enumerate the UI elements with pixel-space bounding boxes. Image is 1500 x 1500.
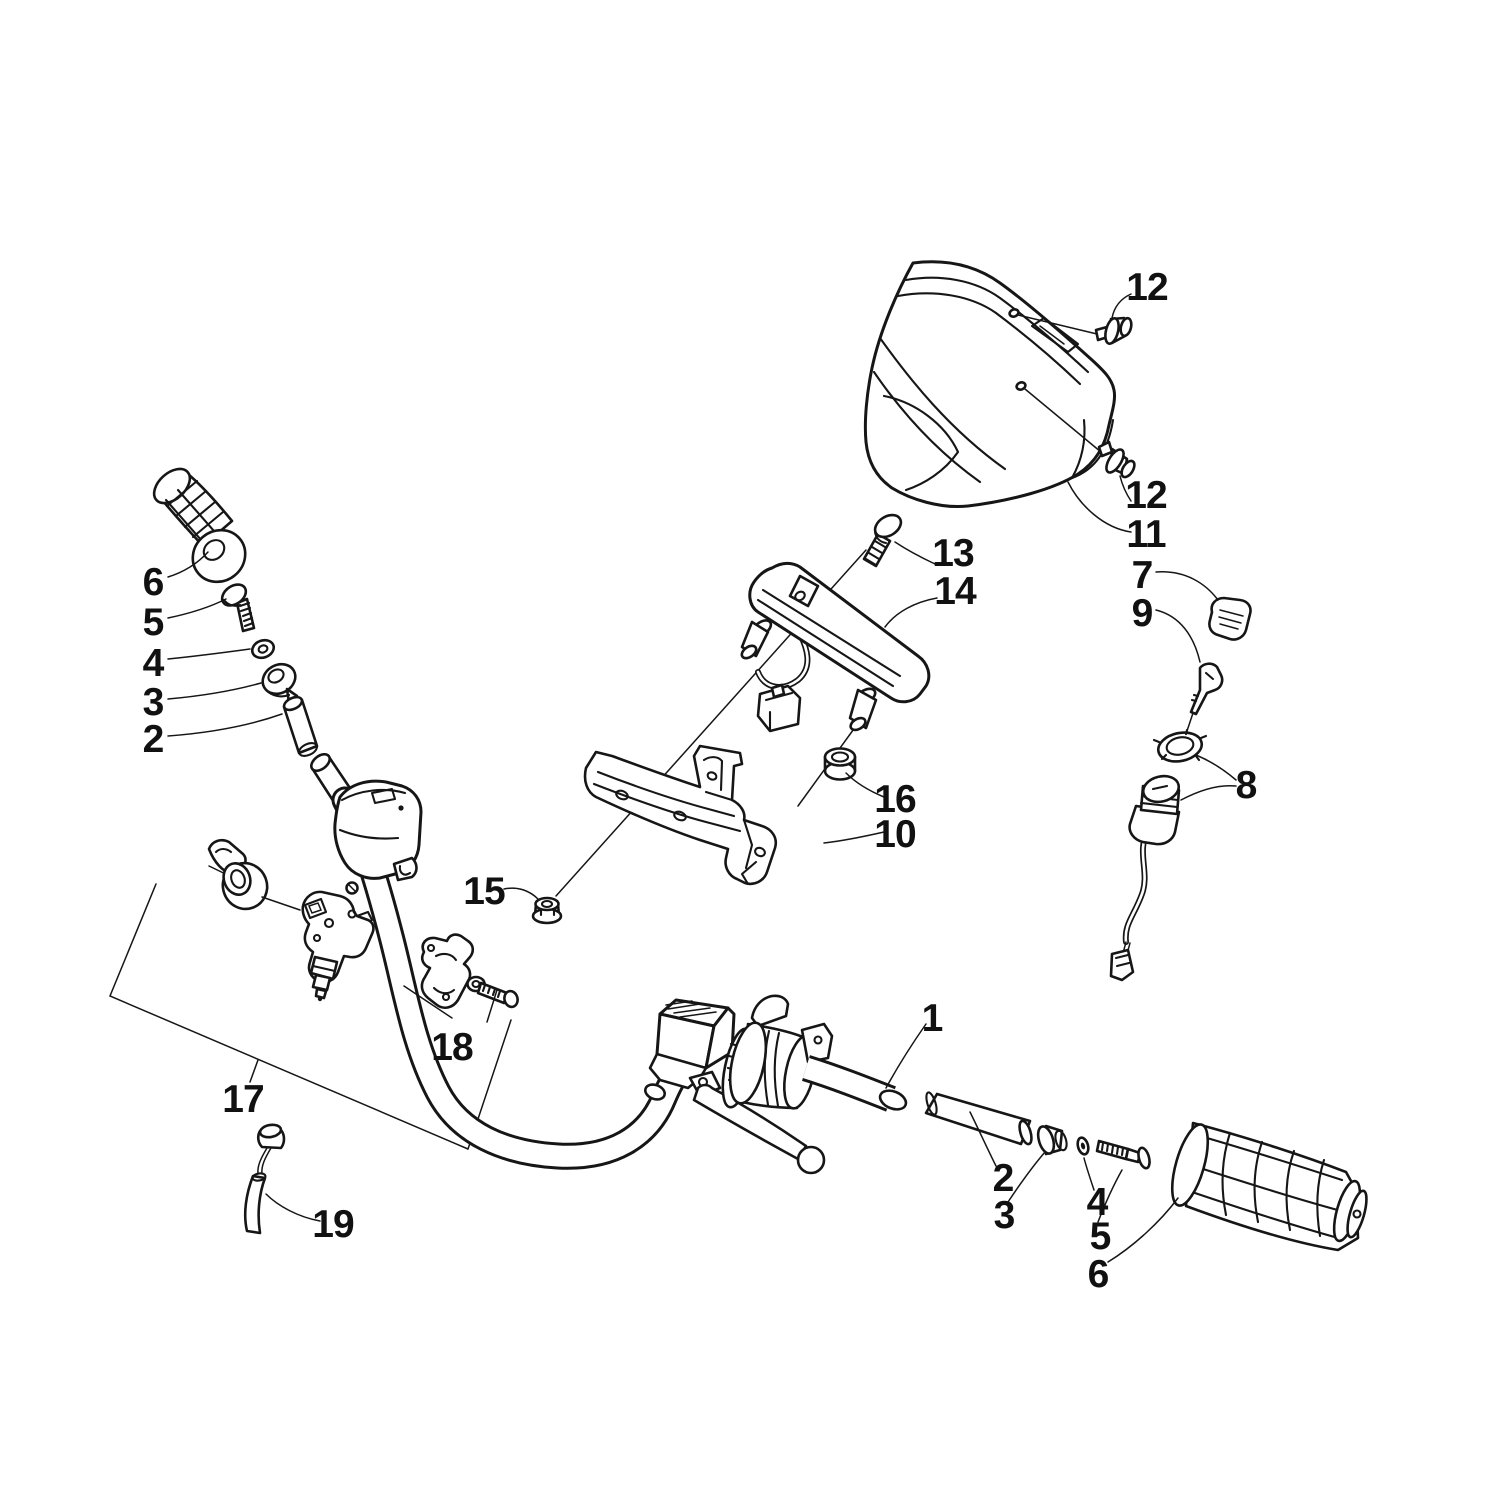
callout-10: 10 [874, 813, 916, 856]
callout-15: 15 [463, 870, 505, 913]
left-grip-6 [148, 462, 256, 592]
callout-4-left: 4 [143, 642, 165, 685]
headlight-pod-cover-11 [865, 262, 1114, 507]
key-fob-7 [1209, 598, 1250, 640]
ignition-lock-ring [1154, 729, 1206, 766]
callout-5-right: 5 [1090, 1215, 1111, 1258]
callout-1: 1 [922, 997, 943, 1040]
left-grip-screw-5 [218, 580, 254, 631]
gauge-grommet-16 [825, 749, 855, 780]
gauge-assembly-14 [740, 563, 929, 732]
flange-nut-15 [533, 898, 561, 923]
choke-knob [209, 840, 300, 915]
callout-14: 14 [934, 570, 977, 613]
cable-boot-19 [245, 1123, 284, 1233]
right-bar-end-tube-2 [924, 1091, 1033, 1145]
ignition-switch-8 [1111, 773, 1181, 980]
parts-diagram-page: 6 5 4 3 2 12 12 11 13 14 7 9 16 10 8 15 … [0, 0, 1500, 1500]
callout-12-upper: 12 [1126, 266, 1168, 309]
callout-18: 18 [431, 1026, 473, 1069]
callout-6-left: 6 [143, 561, 164, 604]
right-grip-washer-4 [1076, 1136, 1090, 1155]
callout-19: 19 [312, 1203, 354, 1246]
callout-6-right: 6 [1088, 1253, 1109, 1296]
right-bar-end-cap-3 [1035, 1125, 1068, 1156]
left-switch-housing [335, 781, 421, 893]
callout-2-left: 2 [143, 718, 164, 761]
brake-master-cylinder [643, 1000, 734, 1102]
right-handlebar-grip-6 [1165, 1121, 1370, 1250]
left-grip-washer-4 [250, 637, 276, 660]
callout-12-lower: 12 [1125, 474, 1167, 517]
ignition-key-9 [1184, 664, 1222, 740]
gauge-bolt-13 [864, 511, 905, 566]
callout-8: 8 [1236, 764, 1257, 807]
callout-9: 9 [1132, 592, 1153, 635]
callout-5-left: 5 [143, 601, 164, 644]
left-bar-end-tube-2 [282, 695, 319, 759]
choke-lever-assembly [303, 892, 374, 1001]
right-grip-screw-5 [1097, 1141, 1152, 1169]
parts-diagram-canvas: 6 5 4 3 2 12 12 11 13 14 7 9 16 10 8 15 … [0, 0, 1500, 1500]
gauge-mounting-bracket-10 [585, 746, 776, 884]
callout-7: 7 [1132, 554, 1153, 597]
callout-11: 11 [1126, 513, 1166, 556]
callout-3-right: 3 [994, 1194, 1015, 1237]
callout-13: 13 [932, 532, 974, 575]
callout-17: 17 [222, 1078, 263, 1121]
